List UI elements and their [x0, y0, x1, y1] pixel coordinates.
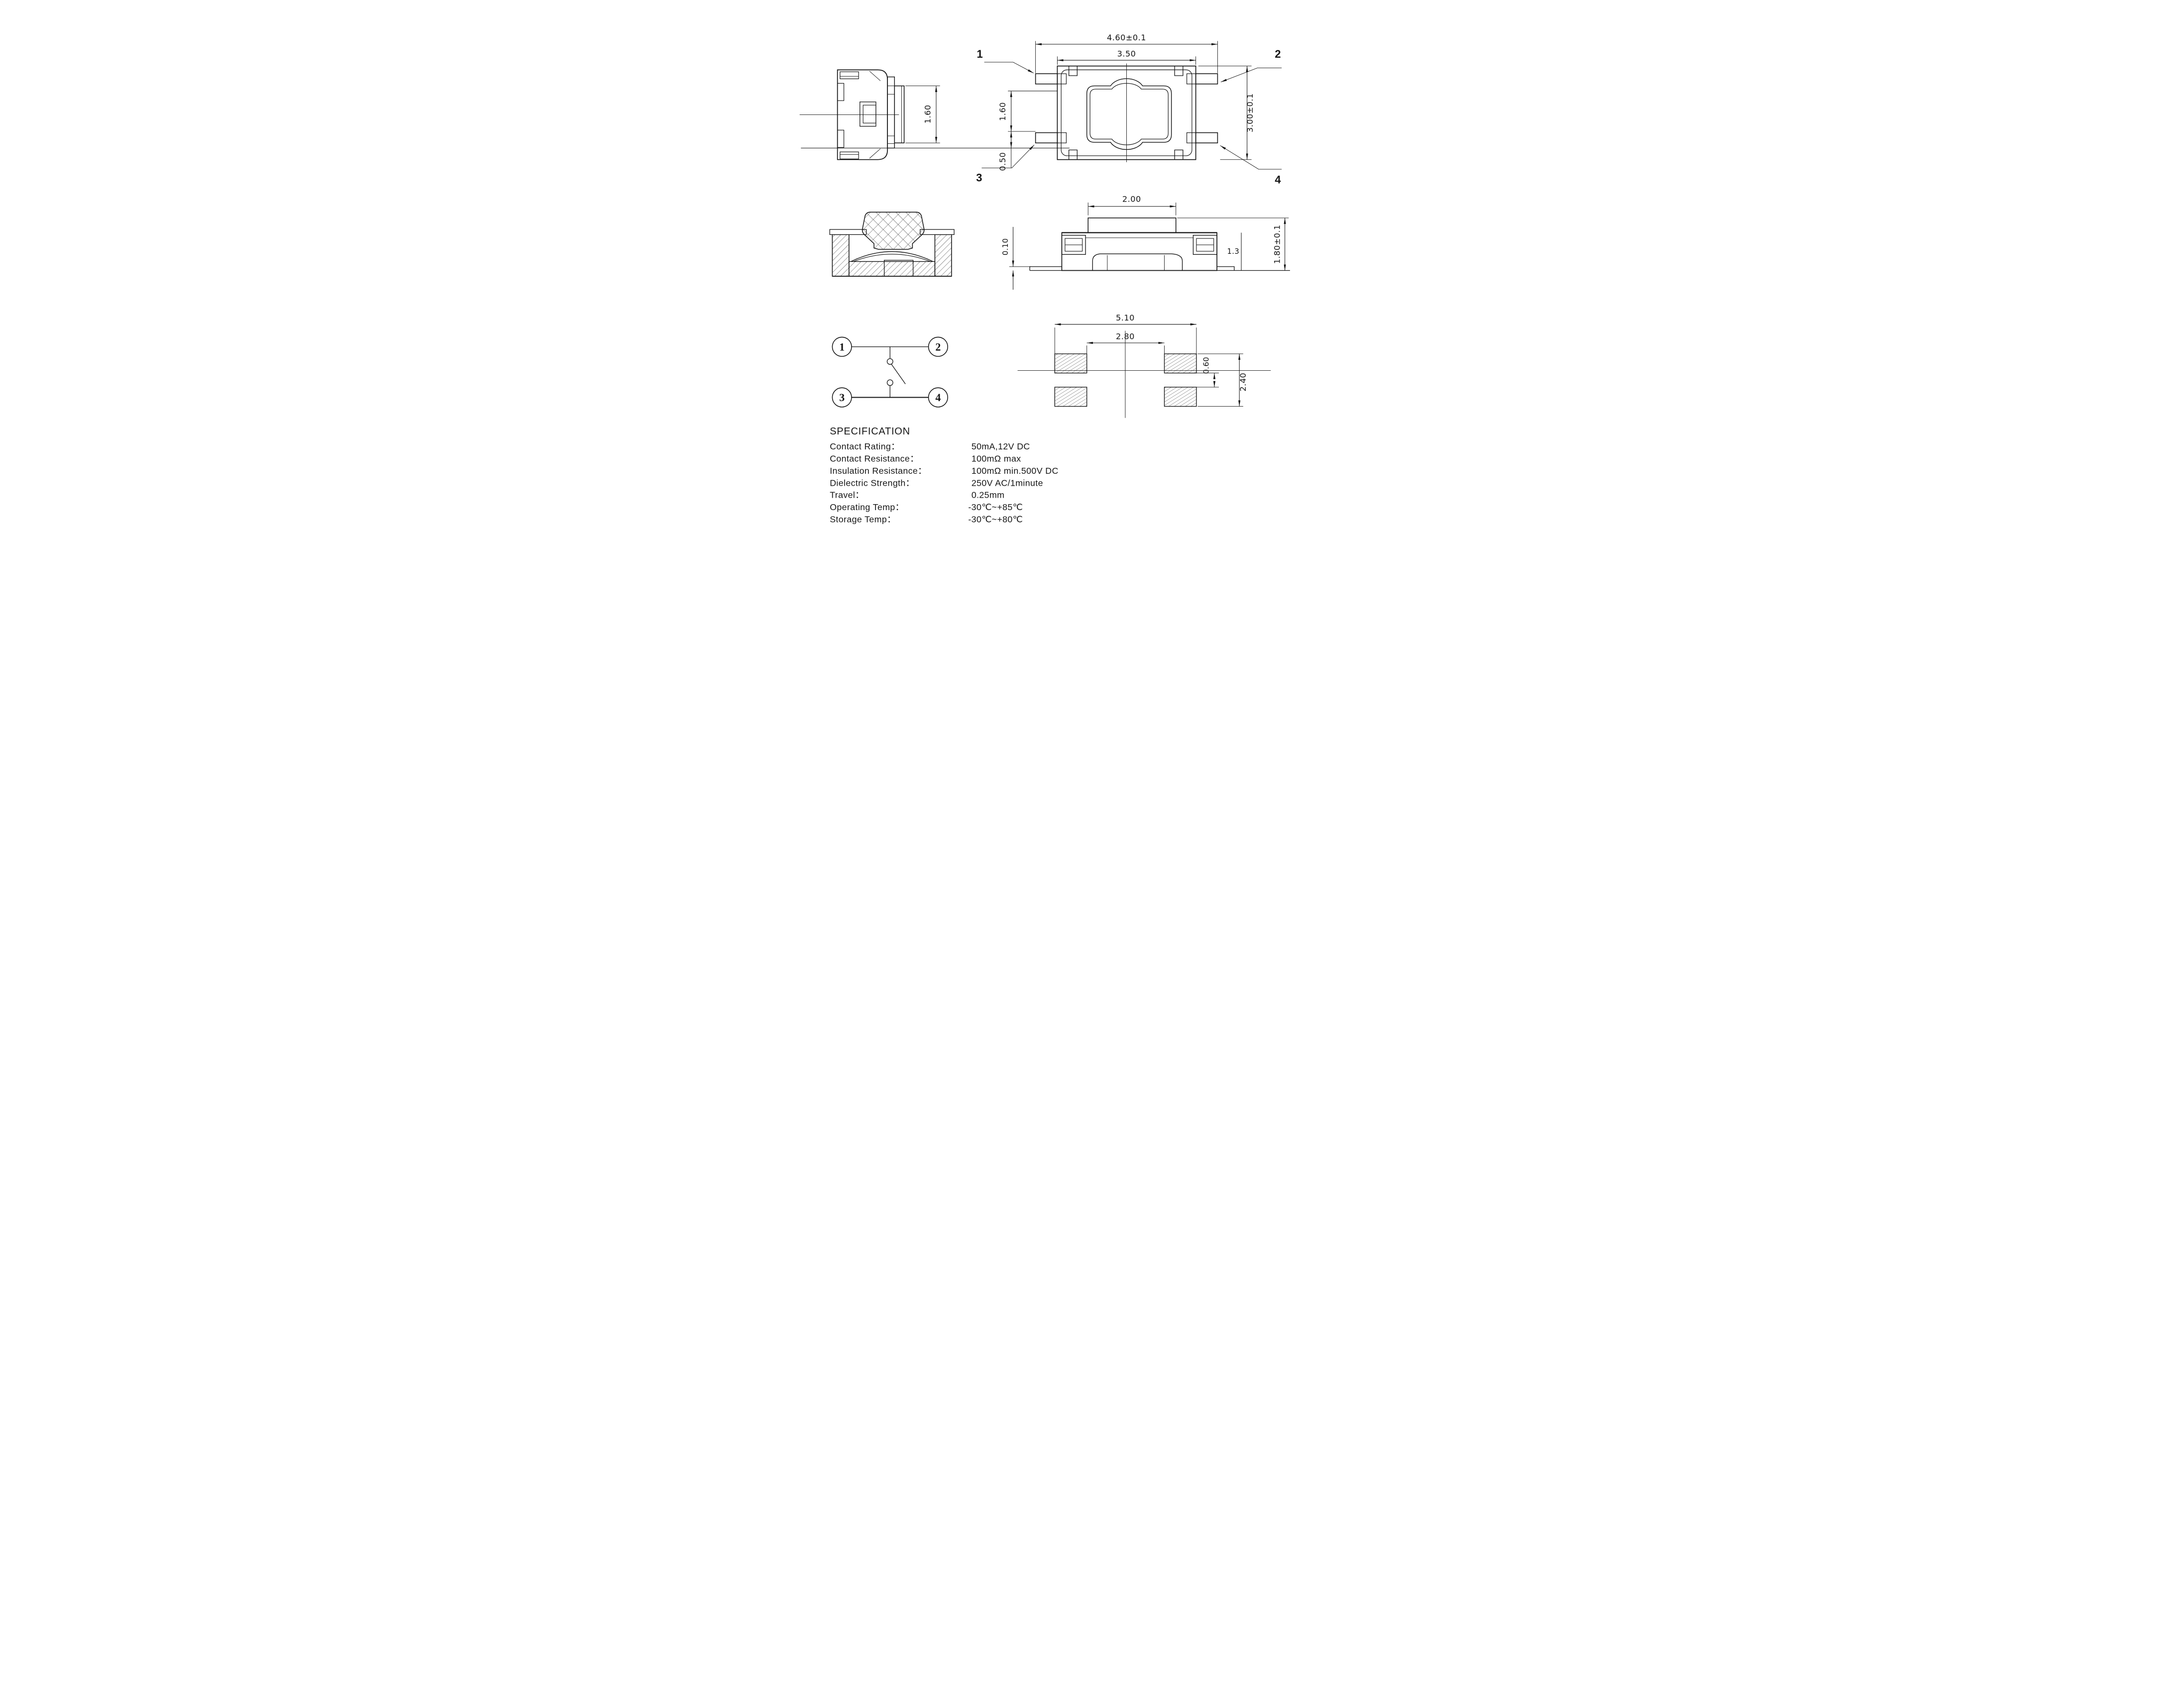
solder-pad: [1164, 387, 1196, 407]
pin-3-label: 3: [976, 171, 982, 184]
spec-label: Operating Temp：: [830, 502, 904, 512]
solder-pad: [1164, 354, 1196, 373]
schematic-pin-1: 1: [839, 340, 845, 353]
right-wall-hatched: [935, 234, 951, 276]
spec-value: 100mΩ min.500V DC: [972, 466, 1059, 476]
dim-text: 1.80±0.1: [1272, 224, 1282, 264]
dim-text: 5.10: [1116, 313, 1135, 322]
pin-4-label: 4: [1275, 173, 1281, 186]
spec-value: 100mΩ max: [972, 453, 1021, 463]
dim-text: 1.60: [998, 102, 1007, 121]
drawing-sheet: 4.60±0.1 3.50 3.00±0.1 1.60 0.50 1: [734, 0, 1430, 550]
dim-text: 2.40: [1238, 373, 1248, 392]
spec-value: 50mA,12V DC: [972, 441, 1030, 451]
solder-pad: [1055, 354, 1086, 373]
spec-value: -30℃~+85℃: [968, 502, 1023, 512]
spec-label: Travel：: [830, 490, 864, 500]
spec-label: Dielectric Strength：: [830, 478, 915, 488]
spec-value: -30℃~+80℃: [968, 515, 1023, 525]
schematic-pin-4: 4: [935, 391, 941, 404]
pin-1-label: 1: [976, 48, 982, 60]
dim-text: 1.3: [1227, 247, 1239, 256]
cover-right: [920, 229, 954, 234]
dim-text: 2.80: [1116, 331, 1135, 341]
base-hatched: [849, 261, 935, 276]
dim-text: 4.60±0.1: [1107, 33, 1146, 42]
spec-label: Contact Rating：: [830, 441, 900, 451]
cover-left: [830, 229, 866, 234]
solder-pad: [1055, 387, 1086, 407]
dim-text: 1.60: [923, 105, 932, 123]
pin-2-label: 2: [1275, 48, 1281, 60]
tact-switch-drawing: 4.60±0.1 3.50 3.00±0.1 1.60 0.50 1: [734, 0, 1430, 550]
spec-title: SPECIFICATION: [830, 426, 910, 437]
spec-label: Insulation Resistance：: [830, 466, 927, 476]
dim-text: 3.50: [1117, 49, 1136, 58]
dim-text: 3.00±0.1: [1245, 93, 1255, 132]
spec-value: 250V AC/1minute: [972, 478, 1043, 488]
dim-text: 2.00: [1122, 195, 1141, 204]
spec-label: Storage Temp：: [830, 515, 896, 525]
left-wall-hatched: [832, 234, 849, 276]
spec-value: 0.25mm: [972, 490, 1005, 500]
schematic-pin-2: 2: [935, 340, 941, 353]
spec-label: Contact Resistance：: [830, 453, 919, 463]
dim-text: 0.10: [1001, 238, 1010, 256]
dim-text: 0.60: [1202, 357, 1210, 374]
schematic-pin-3: 3: [839, 391, 845, 404]
